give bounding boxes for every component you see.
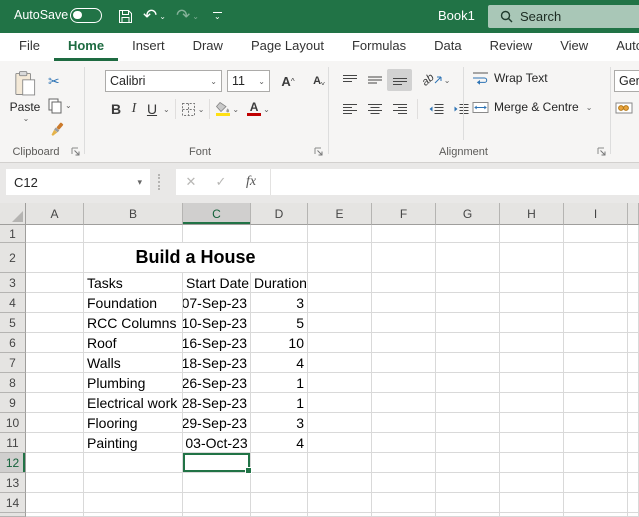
fill-color-button[interactable] [215, 102, 230, 117]
cell-C15[interactable] [183, 513, 251, 517]
align-left-button[interactable] [337, 98, 362, 120]
font-name-select[interactable]: Calibri ⌄ [105, 70, 222, 92]
cell-D12[interactable] [251, 453, 308, 473]
spreadsheet-grid: ABCDEFGHI123TasksStart DateDuration4Foun… [0, 203, 639, 517]
cell-H12[interactable] [500, 453, 564, 473]
cell-J14[interactable] [628, 493, 639, 513]
column-header-A[interactable]: A [26, 203, 84, 225]
format-painter-icon [48, 122, 65, 138]
cell-G7[interactable] [436, 353, 500, 373]
cell-H6[interactable] [500, 333, 564, 353]
cell-B12[interactable] [84, 453, 183, 473]
row-header-1[interactable]: 1 [0, 225, 26, 243]
cell-G13[interactable] [436, 473, 500, 493]
cell-I12[interactable] [564, 453, 628, 473]
decrease-indent-button[interactable] [423, 98, 448, 120]
tab-home[interactable]: Home [54, 33, 118, 61]
cell-C1[interactable] [183, 225, 251, 243]
tab-draw[interactable]: Draw [179, 33, 237, 61]
cell-B13[interactable] [84, 473, 183, 493]
name-box-chevron-icon: ▾ [137, 177, 142, 188]
cell-H13[interactable] [500, 473, 564, 493]
cell-E3[interactable] [308, 273, 372, 293]
font-color-chevron-icon: ⌄ [263, 105, 270, 114]
ribbon-tabs: FileHomeInsertDrawPage LayoutFormulasDat… [0, 33, 639, 61]
tab-file[interactable]: File [5, 33, 54, 61]
cell-H1[interactable] [500, 225, 564, 243]
cell-I6[interactable] [564, 333, 628, 353]
cell-A2[interactable] [26, 243, 84, 273]
cell-C10[interactable]: 29-Sep-23 [183, 413, 251, 433]
clipboard-icon [14, 70, 36, 97]
font-name-value: Calibri [110, 74, 145, 88]
cell-J10[interactable] [628, 413, 639, 433]
mini-separator [417, 99, 418, 119]
cell-A5[interactable] [26, 313, 84, 333]
font-dialog-launcher[interactable] [313, 146, 325, 158]
cell-F3[interactable] [372, 273, 436, 293]
cell-H14[interactable] [500, 493, 564, 513]
cell-J13[interactable] [628, 473, 639, 493]
cell-H10[interactable] [500, 413, 564, 433]
cell-F2[interactable] [372, 243, 436, 273]
cell-G3[interactable] [436, 273, 500, 293]
cell-J12[interactable] [628, 453, 639, 473]
formula-controls: ✕ ✓ fx [176, 169, 639, 195]
number-format-select[interactable]: Gen [614, 70, 639, 92]
cell-C4[interactable]: 07-Sep-23 [183, 293, 251, 313]
cell-D3[interactable]: Duration [251, 273, 308, 293]
redo-button[interactable]: ↷ ⌄ [176, 5, 199, 27]
font-size-select[interactable]: 11 ⌄ [227, 70, 270, 92]
cell-F15[interactable] [372, 513, 436, 517]
cell-B8[interactable]: Plumbing [84, 373, 183, 393]
underline-chevron-icon: ⌄ [163, 105, 170, 114]
save-button[interactable] [118, 5, 133, 27]
orientation-icon: ab [419, 71, 436, 88]
formula-input[interactable] [271, 169, 639, 195]
ribbon-group-number: Gen [614, 61, 639, 162]
cell-D14[interactable] [251, 493, 308, 513]
cell-D1[interactable] [251, 225, 308, 243]
ribbon-group-alignment: ab ⌄ [329, 61, 610, 162]
alignment-dialog-launcher[interactable] [596, 146, 608, 158]
cell-D6[interactable]: 10 [251, 333, 308, 353]
cell-E10[interactable] [308, 413, 372, 433]
font-size-chevron-icon: ⌄ [258, 77, 265, 86]
cell-G4[interactable] [436, 293, 500, 313]
cell-G10[interactable] [436, 413, 500, 433]
toggle-knob-icon [73, 11, 82, 20]
dialog-launcher-icon [313, 146, 324, 157]
cell-H7[interactable] [500, 353, 564, 373]
row-header-6[interactable]: 6 [0, 333, 26, 353]
cell-I7[interactable] [564, 353, 628, 373]
row-header-11[interactable]: 11 [0, 433, 26, 453]
cell-C14[interactable] [183, 493, 251, 513]
row-header-5[interactable]: 5 [0, 313, 26, 333]
cell-B5[interactable]: RCC Columns [84, 313, 183, 333]
cell-C11[interactable]: 03-Oct-23 [183, 433, 251, 453]
cell-A14[interactable] [26, 493, 84, 513]
cell-E15[interactable] [308, 513, 372, 517]
grow-font-icon: A [281, 74, 290, 89]
paste-button[interactable]: Paste ⌄ [5, 65, 45, 135]
cell-D11[interactable]: 4 [251, 433, 308, 453]
cell-B10[interactable]: Flooring [84, 413, 183, 433]
cell-J11[interactable] [628, 433, 639, 453]
accounting-format-icon [615, 101, 633, 115]
wrap-text-icon [472, 71, 489, 85]
undo-icon: ↶ [143, 6, 157, 26]
cell-I9[interactable] [564, 393, 628, 413]
cancel-button[interactable]: ✕ [176, 174, 206, 190]
save-icon [118, 9, 133, 24]
document-title: Book1 [438, 8, 475, 23]
tab-insert[interactable]: Insert [118, 33, 179, 61]
cell-F4[interactable] [372, 293, 436, 313]
cell-E13[interactable] [308, 473, 372, 493]
cell-I5[interactable] [564, 313, 628, 333]
excel-window: AutoSave ↶ ⌄ ↷ ⌄ ⌄ Book1 [0, 0, 639, 517]
group-separator [610, 67, 611, 154]
cell-I2[interactable] [564, 243, 628, 273]
column-header-E[interactable]: E [308, 203, 372, 225]
align-center-button[interactable] [362, 98, 387, 120]
cell-E11[interactable] [308, 433, 372, 453]
paste-label: Paste [10, 100, 41, 114]
cell-I4[interactable] [564, 293, 628, 313]
cell-C7[interactable]: 18-Sep-23 [183, 353, 251, 373]
font-group-label: Font [85, 146, 315, 158]
cell-I10[interactable] [564, 413, 628, 433]
middle-align-icon [367, 74, 383, 87]
cell-B14[interactable] [84, 493, 183, 513]
merge-centre-label: Merge & Centre [494, 100, 579, 114]
cell-J7[interactable] [628, 353, 639, 373]
cell-D5[interactable]: 5 [251, 313, 308, 333]
top-align-icon [342, 74, 358, 87]
cell-H3[interactable] [500, 273, 564, 293]
cell-E5[interactable] [308, 313, 372, 333]
cell-F8[interactable] [372, 373, 436, 393]
copy-icon [48, 98, 63, 114]
cell-E1[interactable] [308, 225, 372, 243]
cell-E2[interactable] [308, 243, 372, 273]
font-color-button[interactable]: A [247, 102, 261, 117]
cut-button[interactable]: ✂ [48, 73, 60, 90]
formula-bar-resize-handle[interactable] [158, 174, 160, 190]
cell-F10[interactable] [372, 413, 436, 433]
column-header-H[interactable]: H [500, 203, 564, 225]
cell-G1[interactable] [436, 225, 500, 243]
cell-E6[interactable] [308, 333, 372, 353]
cell-A8[interactable] [26, 373, 84, 393]
cell-J2[interactable] [628, 243, 639, 273]
tab-page-layout[interactable]: Page Layout [237, 33, 338, 61]
mini-separator [209, 99, 210, 119]
ribbon-group-font: Calibri ⌄ 11 ⌄ A^ A^ B I U ⌄ [85, 61, 327, 162]
cell-C3[interactable]: Start Date [183, 273, 251, 293]
titlebar: AutoSave ↶ ⌄ ↷ ⌄ ⌄ Book1 [0, 0, 639, 33]
cell-D4[interactable]: 3 [251, 293, 308, 313]
row-header-10[interactable]: 10 [0, 413, 26, 433]
cell-D7[interactable]: 4 [251, 353, 308, 373]
merge-centre-icon [472, 101, 489, 114]
cell-F5[interactable] [372, 313, 436, 333]
cell-A4[interactable] [26, 293, 84, 313]
column-header-G[interactable]: G [436, 203, 500, 225]
cell-E8[interactable] [308, 373, 372, 393]
row-header-2[interactable]: 2 [0, 243, 26, 273]
cell-B15[interactable] [84, 513, 183, 517]
middle-align-button[interactable] [362, 69, 387, 91]
cell-H5[interactable] [500, 313, 564, 333]
align-center-icon [367, 103, 383, 116]
increase-indent-button[interactable] [448, 98, 473, 120]
redo-chevron-icon: ⌄ [192, 12, 199, 21]
cell-J1[interactable] [628, 225, 639, 243]
cell-H9[interactable] [500, 393, 564, 413]
cell-A15[interactable] [26, 513, 84, 517]
name-box-value: C12 [14, 175, 38, 190]
copy-button[interactable]: ⌄ [48, 97, 72, 114]
align-right-button[interactable] [387, 98, 412, 120]
clipboard-dialog-launcher[interactable] [70, 146, 82, 158]
cell-A13[interactable] [26, 473, 84, 493]
tab-data[interactable]: Data [420, 33, 475, 61]
cell-E9[interactable] [308, 393, 372, 413]
cell-B6[interactable]: Roof [84, 333, 183, 353]
fill-color-bar [216, 113, 230, 117]
search-label: Search [520, 9, 561, 24]
orientation-chevron-icon: ⌄ [444, 76, 451, 85]
cell-G11[interactable] [436, 433, 500, 453]
merge-centre-button[interactable]: Merge & Centre ⌄ [472, 100, 592, 114]
cell-A10[interactable] [26, 413, 84, 433]
fill-color-icon [215, 102, 230, 113]
row-header-13[interactable]: 13 [0, 473, 26, 493]
customize-qat-button[interactable]: ⌄ [213, 12, 222, 21]
cell-I15[interactable] [564, 513, 628, 517]
underline-button[interactable]: U [143, 101, 161, 117]
row-header-15[interactable] [0, 513, 26, 517]
row-header-14[interactable]: 14 [0, 493, 26, 513]
font-size-value: 11 [232, 74, 245, 88]
align-right-icon [392, 103, 408, 116]
cell-F6[interactable] [372, 333, 436, 353]
cell-C6[interactable]: 16-Sep-23 [183, 333, 251, 353]
cell-F11[interactable] [372, 433, 436, 453]
cell-D8[interactable]: 1 [251, 373, 308, 393]
row-header-7[interactable]: 7 [0, 353, 26, 373]
subgroup-separator [463, 67, 464, 140]
column-header-D[interactable]: D [251, 203, 308, 225]
cell-B1[interactable] [84, 225, 183, 243]
cell-F1[interactable] [372, 225, 436, 243]
mini-separator [175, 99, 176, 119]
dialog-launcher-icon [70, 146, 81, 157]
row-header-9[interactable]: 9 [0, 393, 26, 413]
tab-automate[interactable]: Automate [602, 33, 639, 61]
redo-icon: ↷ [176, 6, 190, 26]
font-color-bar [247, 113, 261, 117]
customize-qat-chevron-icon: ⌄ [214, 14, 221, 20]
cell-E7[interactable] [308, 353, 372, 373]
font-name-chevron-icon: ⌄ [210, 77, 217, 86]
top-align-button[interactable] [337, 69, 362, 91]
cell-B11[interactable]: Painting [84, 433, 183, 453]
bottom-align-button[interactable] [387, 69, 412, 91]
wrap-text-button[interactable]: Wrap Text [472, 71, 548, 85]
borders-chevron-icon: ⌄ [198, 105, 205, 114]
number-format-value: Gen [619, 74, 639, 88]
cell-D10[interactable]: 3 [251, 413, 308, 433]
cell-F9[interactable] [372, 393, 436, 413]
merge-chevron-icon: ⌄ [586, 103, 593, 112]
cell-J5[interactable] [628, 313, 639, 333]
accounting-format-button[interactable] [615, 101, 633, 115]
cell-H15[interactable] [500, 513, 564, 517]
cell-A7[interactable] [26, 353, 84, 373]
search-icon [500, 10, 513, 23]
cell-B7[interactable]: Walls [84, 353, 183, 373]
autosave-toggle[interactable] [70, 8, 102, 23]
cell-J6[interactable] [628, 333, 639, 353]
cell-G6[interactable] [436, 333, 500, 353]
cell-B4[interactable]: Foundation [84, 293, 183, 313]
column-header-partial[interactable] [628, 203, 639, 225]
cell-B9[interactable]: Electrical work [84, 393, 183, 413]
cell-G15[interactable] [436, 513, 500, 517]
font-color-letter: A [250, 102, 259, 113]
cell-I11[interactable] [564, 433, 628, 453]
column-header-F[interactable]: F [372, 203, 436, 225]
cell-C8[interactable]: 26-Sep-23 [183, 373, 251, 393]
cell-J8[interactable] [628, 373, 639, 393]
cell-I1[interactable] [564, 225, 628, 243]
cell-F13[interactable] [372, 473, 436, 493]
cell-worksheet-title[interactable]: Build a House [84, 243, 308, 273]
cell-D9[interactable]: 1 [251, 393, 308, 413]
column-header-C[interactable]: C [183, 203, 251, 225]
cell-C13[interactable] [183, 473, 251, 493]
cell-D13[interactable] [251, 473, 308, 493]
tab-view[interactable]: View [546, 33, 602, 61]
formula-bar: C12 ▾ ✕ ✓ fx [0, 163, 639, 203]
decrease-indent-icon [428, 103, 444, 116]
alignment-group-label: Alignment [329, 146, 598, 158]
clipboard-small-buttons: ✂ ⌄ [48, 73, 78, 138]
cell-I13[interactable] [564, 473, 628, 493]
borders-icon [181, 102, 196, 117]
cell-J4[interactable] [628, 293, 639, 313]
cell-G2[interactable] [436, 243, 500, 273]
column-header-B[interactable]: B [84, 203, 183, 225]
cell-H8[interactable] [500, 373, 564, 393]
cell-A9[interactable] [26, 393, 84, 413]
cell-J15[interactable] [628, 513, 639, 517]
cell-G14[interactable] [436, 493, 500, 513]
insert-function-button[interactable]: fx [236, 174, 266, 190]
increase-font-size-button[interactable]: A^ [275, 70, 301, 92]
cell-C12[interactable] [183, 453, 251, 473]
cell-C5[interactable]: 10-Sep-23 [183, 313, 251, 333]
cell-E14[interactable] [308, 493, 372, 513]
cell-J9[interactable] [628, 393, 639, 413]
row-header-3[interactable]: 3 [0, 273, 26, 293]
undo-chevron-icon: ⌄ [159, 12, 166, 21]
cell-A3[interactable] [26, 273, 84, 293]
undo-button[interactable]: ↶ ⌄ [143, 5, 166, 27]
ribbon-group-clipboard: Paste ⌄ ✂ ⌄ [0, 61, 84, 162]
cell-F7[interactable] [372, 353, 436, 373]
align-left-icon [342, 103, 358, 116]
cell-J3[interactable] [628, 273, 639, 293]
cell-I8[interactable] [564, 373, 628, 393]
bottom-align-icon [392, 74, 408, 87]
cell-A11[interactable] [26, 433, 84, 453]
enter-button[interactable]: ✓ [206, 174, 236, 190]
cell-A1[interactable] [26, 225, 84, 243]
cell-D15[interactable] [251, 513, 308, 517]
search-box[interactable]: Search [488, 5, 639, 28]
wrap-text-label: Wrap Text [494, 71, 548, 85]
cell-E4[interactable] [308, 293, 372, 313]
tab-review[interactable]: Review [476, 33, 547, 61]
italic-button[interactable]: I [125, 101, 143, 117]
orientation-button[interactable]: ab ⌄ [418, 69, 454, 91]
copy-chevron-icon: ⌄ [65, 101, 72, 110]
ribbon: Paste ⌄ ✂ ⌄ [0, 61, 639, 163]
select-all-corner[interactable] [0, 203, 26, 225]
dialog-launcher-icon [596, 146, 607, 157]
cell-B3[interactable]: Tasks [84, 273, 183, 293]
cell-G12[interactable] [436, 453, 500, 473]
fill-chevron-icon: ⌄ [232, 105, 239, 114]
paste-chevron-icon: ⌄ [23, 114, 30, 123]
quick-access-toolbar: ↶ ⌄ ↷ ⌄ ⌄ [118, 5, 222, 27]
clipboard-group-label: Clipboard [0, 146, 72, 158]
cell-A12[interactable] [26, 453, 84, 473]
row-header-4[interactable]: 4 [0, 293, 26, 313]
row-header-8[interactable]: 8 [0, 373, 26, 393]
scissors-icon: ✂ [48, 73, 60, 90]
cell-C9[interactable]: 28-Sep-23 [183, 393, 251, 413]
cell-I14[interactable] [564, 493, 628, 513]
cell-G9[interactable] [436, 393, 500, 413]
cell-H2[interactable] [500, 243, 564, 273]
cell-F12[interactable] [372, 453, 436, 473]
cell-A6[interactable] [26, 333, 84, 353]
cell-E12[interactable] [308, 453, 372, 473]
cell-I3[interactable] [564, 273, 628, 293]
autosave-label: AutoSave [14, 8, 68, 22]
bold-button[interactable]: B [107, 101, 125, 117]
cell-H11[interactable] [500, 433, 564, 453]
increase-indent-icon [453, 103, 469, 116]
cell-H4[interactable] [500, 293, 564, 313]
column-header-I[interactable]: I [564, 203, 628, 225]
cell-G8[interactable] [436, 373, 500, 393]
cell-G5[interactable] [436, 313, 500, 333]
row-header-12[interactable]: 12 [0, 453, 26, 473]
cell-F14[interactable] [372, 493, 436, 513]
name-box[interactable]: C12 ▾ [6, 169, 150, 195]
borders-button[interactable]: ⌄ [181, 102, 205, 117]
tab-formulas[interactable]: Formulas [338, 33, 420, 61]
format-painter-button[interactable] [48, 121, 65, 138]
